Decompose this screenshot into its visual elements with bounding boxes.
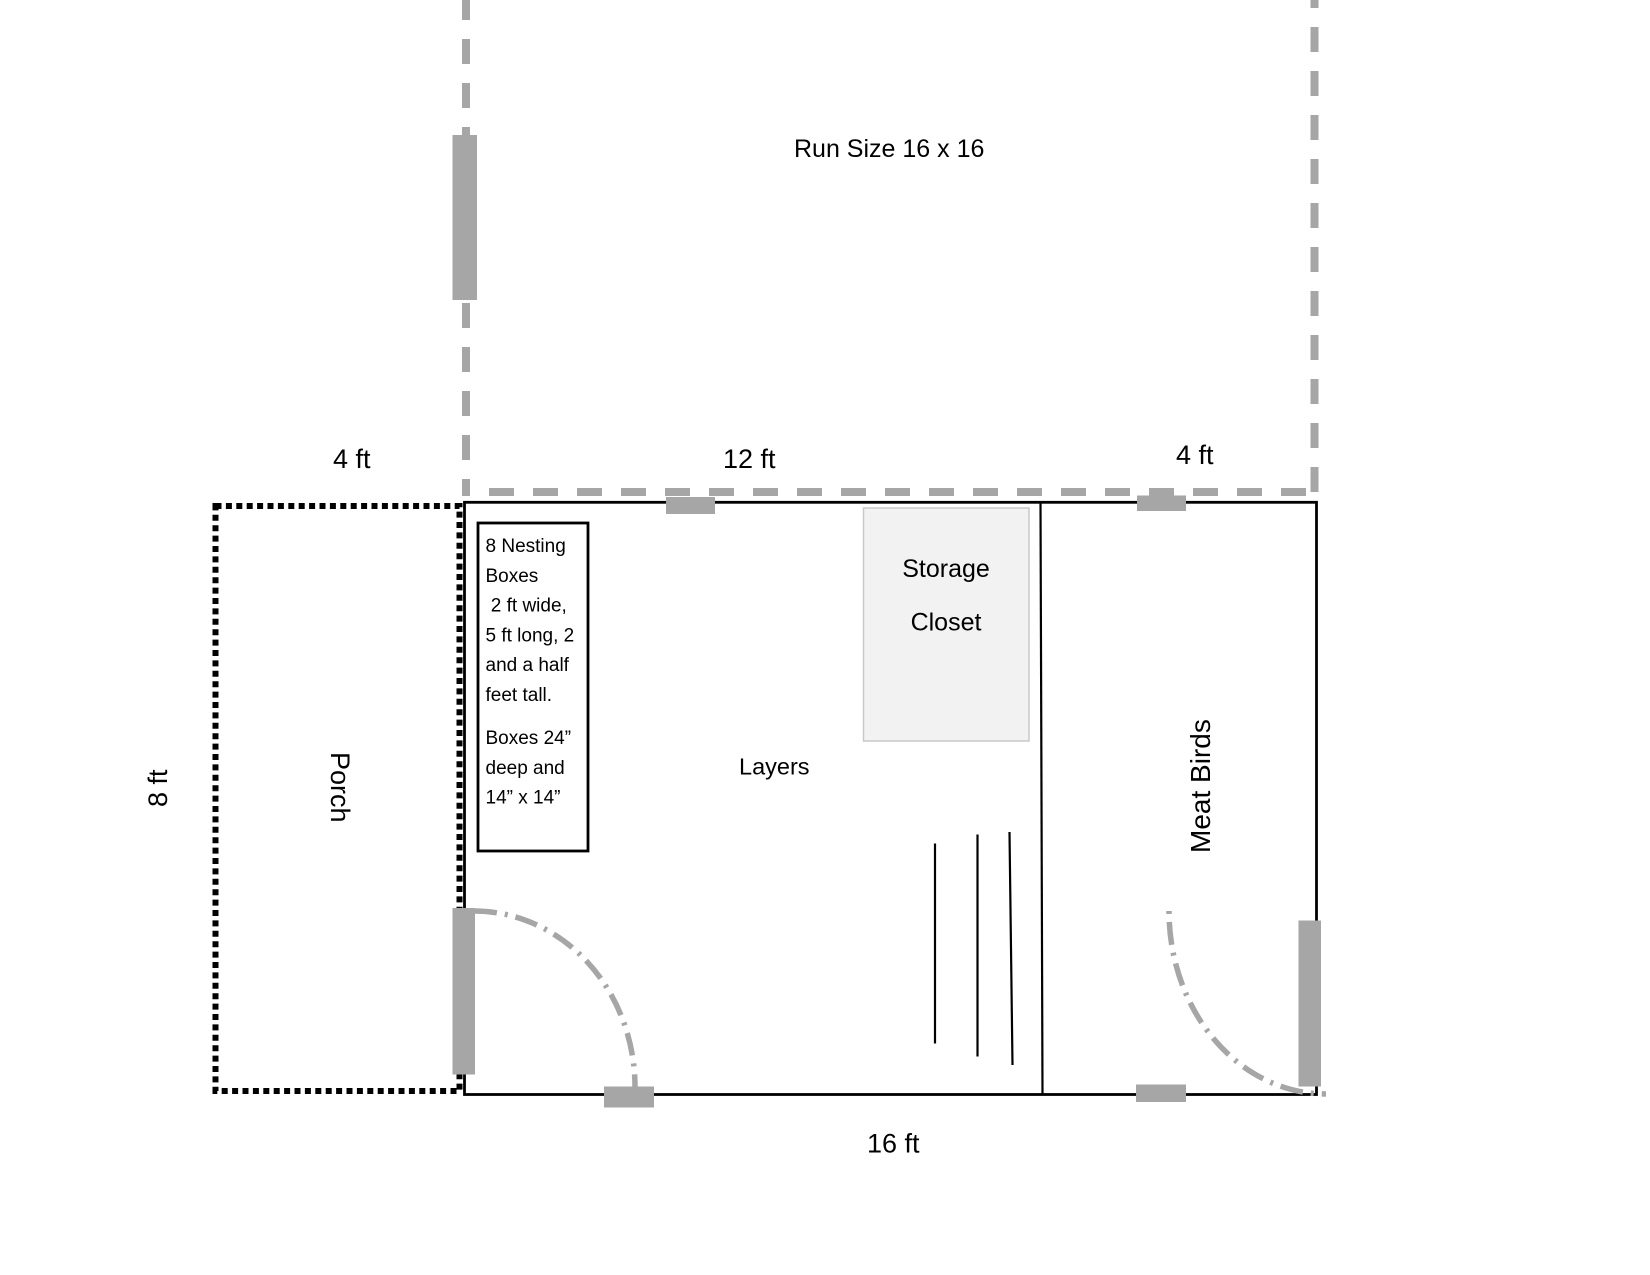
- svg-text:deep and: deep and: [486, 758, 565, 779]
- svg-text:Boxes: Boxes: [486, 566, 539, 587]
- svg-text:14” x 14”: 14” x 14”: [486, 788, 561, 809]
- svg-text:12 ft: 12 ft: [723, 444, 776, 474]
- svg-text:feet tall.: feet tall.: [486, 685, 553, 706]
- svg-text:8 ft: 8 ft: [143, 769, 173, 807]
- svg-text:16 ft: 16 ft: [867, 1129, 920, 1159]
- svg-text:Run Size 16 x 16: Run Size 16 x 16: [794, 135, 984, 163]
- svg-text:Storage: Storage: [902, 555, 990, 583]
- svg-text:2 ft wide,: 2 ft wide,: [486, 596, 567, 617]
- svg-text:and a half: and a half: [486, 655, 570, 676]
- svg-text:Closet: Closet: [911, 609, 982, 637]
- svg-text:5 ft long, 2: 5 ft long, 2: [486, 625, 575, 646]
- svg-text:Boxes 24”: Boxes 24”: [486, 728, 572, 749]
- svg-text:8 Nesting: 8 Nesting: [486, 536, 566, 557]
- svg-text:Porch: Porch: [325, 752, 355, 823]
- svg-text:4 ft: 4 ft: [333, 444, 371, 474]
- svg-text:Meat Birds: Meat Birds: [1185, 719, 1216, 853]
- svg-text:4 ft: 4 ft: [1176, 440, 1214, 470]
- svg-text:Layers: Layers: [739, 754, 810, 780]
